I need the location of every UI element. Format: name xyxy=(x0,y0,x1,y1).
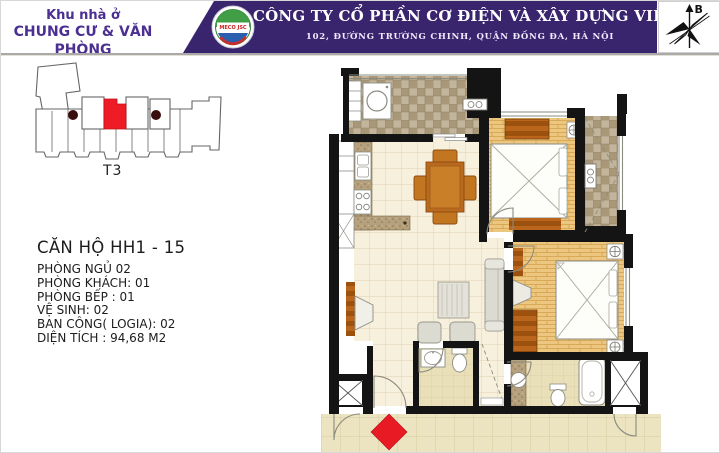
key-plan: T3 xyxy=(16,59,236,181)
compass-icon: B xyxy=(659,2,720,52)
inner-hall-floor xyxy=(479,341,504,406)
logo-text: MECO JSC xyxy=(219,25,247,31)
apartment-balconies: BAN CÔNG( LOGIA): 02 xyxy=(37,318,185,332)
key-plan-core-dot-left xyxy=(68,110,78,120)
entry-hall-floor xyxy=(373,341,413,406)
wardrobe-master xyxy=(513,310,537,352)
wardrobe-bedroom1 xyxy=(505,119,549,139)
ac-unit-icon xyxy=(463,99,487,110)
compass-box: B xyxy=(658,1,720,53)
toilet-icon-bath1 xyxy=(452,348,467,372)
key-plan-core-dot-right xyxy=(151,110,161,120)
service-shaft-right xyxy=(610,360,641,406)
toilet-icon-master-bath xyxy=(550,384,566,407)
tv-cabinet-living xyxy=(346,282,355,336)
utility-closet xyxy=(348,81,361,121)
kitchen-sink-icon xyxy=(355,152,371,180)
coffee-table xyxy=(438,282,469,318)
project-line1: Khu nhà ở xyxy=(3,8,163,24)
sofa xyxy=(485,259,504,331)
apartment-info: CĂN HỘ HH1 - 15 PHÒNG NGỦ 02 PHÒNG KHÁCH… xyxy=(37,238,185,346)
armchair-right xyxy=(450,322,475,343)
apartment-area: DIỆN TÍCH : 94,68 M2 xyxy=(37,332,185,346)
armchair-left xyxy=(418,322,441,343)
corridor-floor xyxy=(321,414,661,453)
compass-north-label: B xyxy=(695,3,703,16)
apartment-living: PHÒNG KHÁCH: 01 xyxy=(37,277,185,291)
company-name: CÔNG TY CỔ PHẦN CƠ ĐIỆN VÀ XÂY DỰNG VIỆT… xyxy=(253,7,657,25)
brochure-page: Khu nhà ở CHUNG CƯ & VĂN PHÒNG MECO JSC … xyxy=(0,0,720,453)
washing-machine-icon xyxy=(363,83,391,119)
tower-label: T3 xyxy=(102,163,122,179)
tv-cabinet-bedroom1 xyxy=(509,218,561,230)
stove-icon xyxy=(354,190,371,214)
key-plan-highlighted-unit xyxy=(104,99,126,129)
threshold xyxy=(481,398,503,405)
apartment-title: CĂN HỘ HH1 - 15 xyxy=(37,238,185,257)
project-title: Khu nhà ở CHUNG CƯ & VĂN PHÒNG xyxy=(3,8,163,59)
bed-bedroom1 xyxy=(491,144,567,218)
apartment-bedrooms: PHÒNG NGỦ 02 xyxy=(37,263,185,277)
ac-unit-icon-2 xyxy=(585,164,596,188)
bathtub-icon xyxy=(579,358,605,405)
company-logo: MECO JSC xyxy=(211,5,255,49)
bed-master xyxy=(556,261,618,339)
floor-plan xyxy=(321,56,661,453)
company-address: 102, ĐƯỜNG TRƯỜNG CHINH, QUẬN ĐỐNG ĐA, H… xyxy=(263,32,657,42)
